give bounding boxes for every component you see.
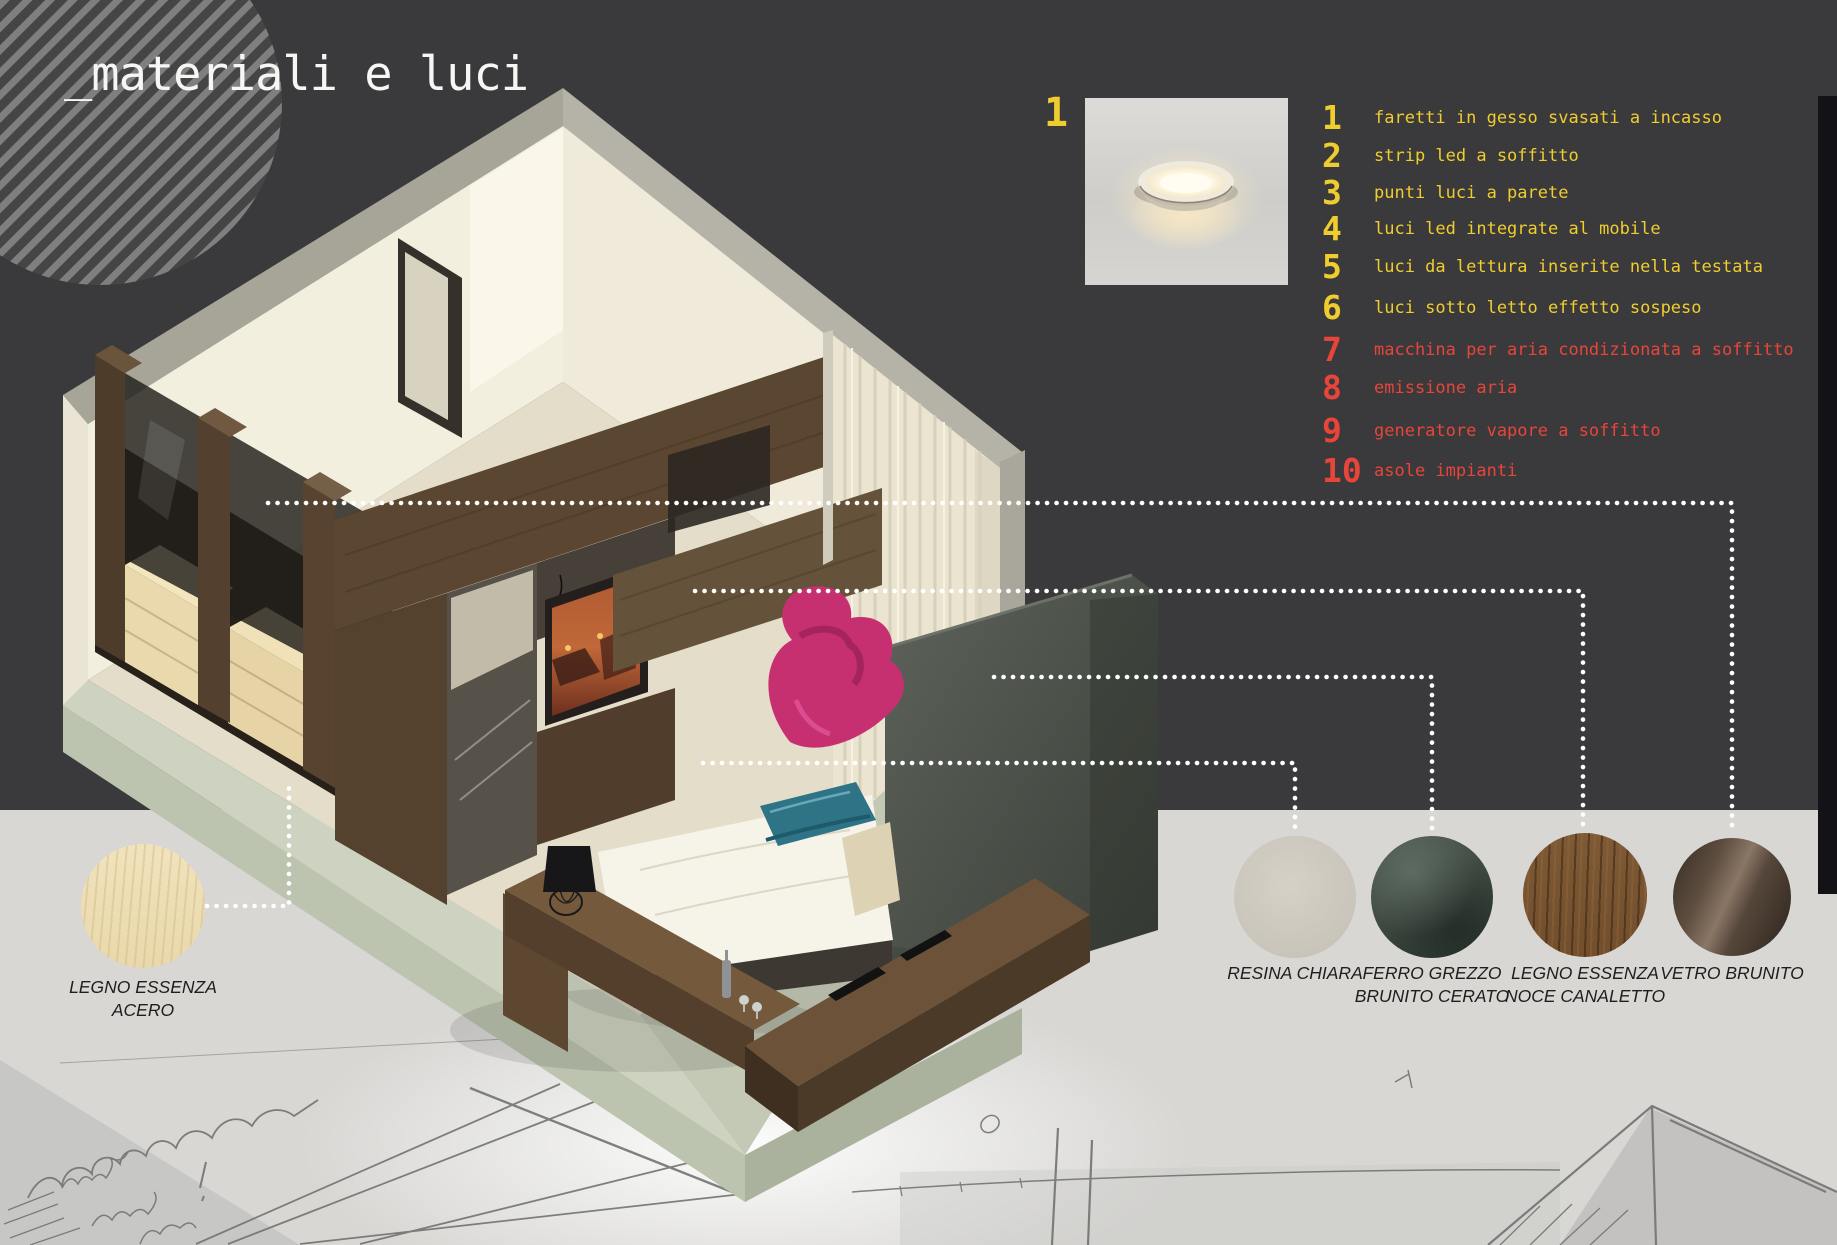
legend-label: luci sotto letto effetto sospeso bbox=[1374, 288, 1702, 328]
legend-number: 10 bbox=[1322, 451, 1362, 491]
door-leaf bbox=[405, 252, 448, 420]
page-title: _materiali e luci bbox=[64, 47, 528, 102]
room-cutaway bbox=[63, 88, 1158, 1202]
swatch-vetro-brunito bbox=[1673, 838, 1791, 956]
spotlight-photo bbox=[1085, 98, 1288, 285]
legend-number: 6 bbox=[1322, 288, 1342, 328]
swatch-label-vetro: VETRO BRUNITO bbox=[1622, 962, 1837, 985]
legend-number: 8 bbox=[1322, 368, 1342, 408]
legend-number: 4 bbox=[1322, 209, 1342, 249]
legend-label: asole impianti bbox=[1374, 451, 1517, 491]
legend-label: generatore vapore a soffitto bbox=[1374, 411, 1661, 451]
legend-label: faretti in gesso svasati a incasso bbox=[1374, 98, 1722, 138]
swatch-ferro-grezzo bbox=[1371, 836, 1493, 958]
legend-label: luci da lettura inserite nella testata bbox=[1374, 247, 1763, 287]
legend-label: luci led integrate al mobile bbox=[1374, 209, 1661, 249]
presentation-board: _materiali e luci 1 bbox=[0, 0, 1837, 1245]
swatch-noce-canaletto bbox=[1523, 833, 1647, 957]
legend-number: 3 bbox=[1322, 173, 1342, 213]
legend-label: strip led a soffitto bbox=[1374, 136, 1579, 176]
legend-label: emissione aria bbox=[1374, 368, 1517, 408]
recessed-light-illustration bbox=[1085, 98, 1288, 285]
swatch-legno-acero bbox=[81, 844, 205, 968]
legend-number: 7 bbox=[1322, 330, 1342, 370]
legend-number: 5 bbox=[1322, 247, 1342, 287]
partition-end-post bbox=[823, 330, 833, 565]
swatch-resina-chiara bbox=[1234, 836, 1356, 958]
swatch-label-acero: LEGNO ESSENZA ACERO bbox=[33, 976, 253, 1022]
legend-label: punti luci a parete bbox=[1374, 173, 1568, 213]
hatched-circle-decoration bbox=[0, 0, 282, 285]
figure-number: 1 bbox=[1044, 90, 1068, 136]
legend-number: 2 bbox=[1322, 136, 1342, 176]
legend-label: macchina per aria condizionata a soffitt… bbox=[1374, 330, 1794, 370]
legend-number: 9 bbox=[1322, 411, 1342, 451]
legend-number: 1 bbox=[1322, 98, 1342, 138]
